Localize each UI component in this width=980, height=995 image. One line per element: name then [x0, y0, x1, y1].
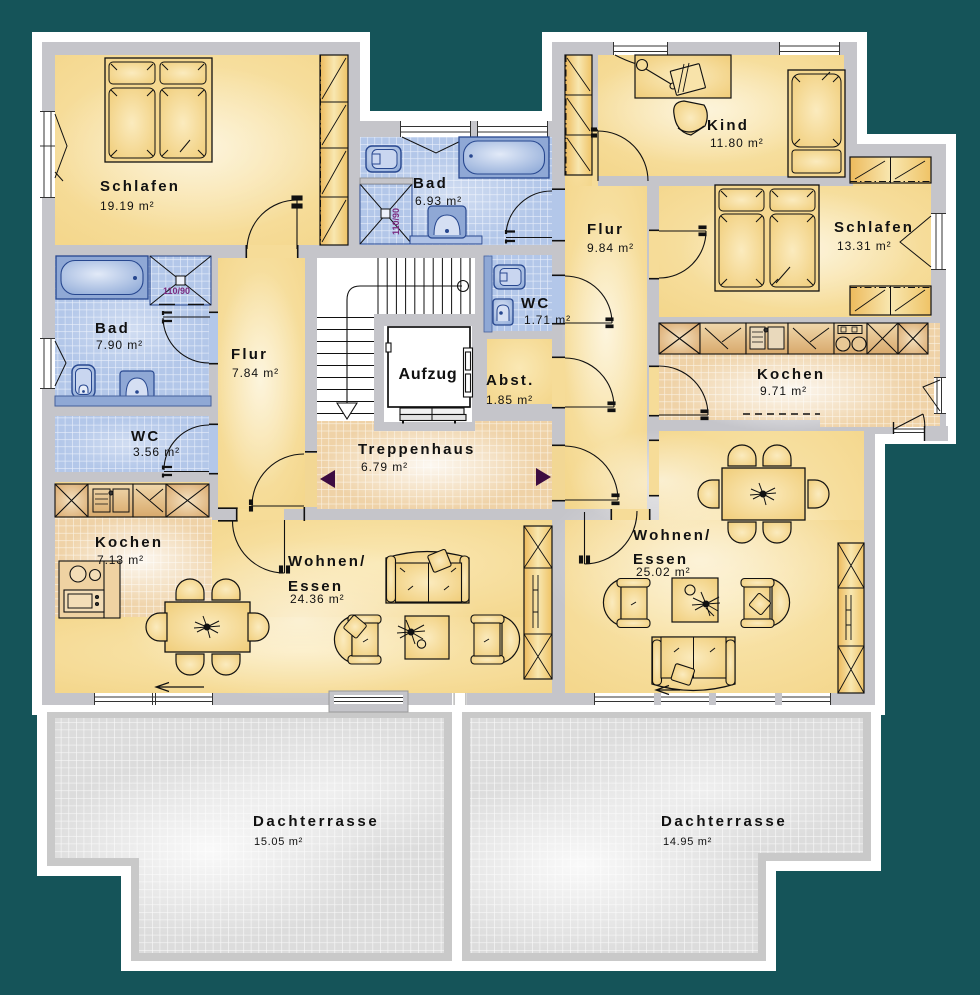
- svg-text:Treppenhaus: Treppenhaus: [358, 441, 476, 458]
- svg-text:Dachterrasse: Dachterrasse: [253, 813, 379, 830]
- svg-text:Wohnen/: Wohnen/: [633, 527, 711, 544]
- svg-text:13.31 m²: 13.31 m²: [837, 239, 892, 253]
- svg-text:15.05 m²: 15.05 m²: [254, 836, 303, 848]
- svg-text:Kochen: Kochen: [95, 534, 163, 551]
- svg-text:1.71 m²: 1.71 m²: [524, 313, 571, 327]
- svg-text:7.84 m²: 7.84 m²: [232, 366, 279, 380]
- svg-text:Schlafen: Schlafen: [834, 219, 914, 236]
- svg-text:1.85 m²: 1.85 m²: [486, 393, 533, 407]
- svg-text:6.93 m²: 6.93 m²: [415, 194, 462, 208]
- svg-text:19.19 m²: 19.19 m²: [100, 199, 155, 213]
- svg-text:24.36 m²: 24.36 m²: [290, 592, 345, 606]
- svg-text:14.95 m²: 14.95 m²: [663, 836, 712, 848]
- svg-text:9.84 m²: 9.84 m²: [587, 241, 634, 255]
- svg-text:Bad: Bad: [413, 175, 448, 192]
- svg-text:7.90 m²: 7.90 m²: [96, 338, 143, 352]
- svg-text:11.80 m²: 11.80 m²: [710, 136, 764, 150]
- svg-text:Kochen: Kochen: [757, 366, 825, 383]
- svg-text:7.13 m²: 7.13 m²: [97, 553, 144, 567]
- svg-text:25.02 m²: 25.02 m²: [636, 565, 691, 579]
- svg-text:Aufzug: Aufzug: [398, 366, 457, 383]
- svg-text:6.79 m²: 6.79 m²: [361, 460, 408, 474]
- svg-text:Flur: Flur: [587, 221, 624, 238]
- svg-text:WC: WC: [521, 295, 550, 312]
- svg-text:Kind: Kind: [707, 117, 749, 134]
- svg-text:Schlafen: Schlafen: [100, 178, 180, 195]
- svg-text:110/90: 110/90: [391, 208, 401, 235]
- svg-text:Dachterrasse: Dachterrasse: [661, 813, 787, 830]
- svg-text:Flur: Flur: [231, 346, 268, 363]
- svg-text:9.71 m²: 9.71 m²: [760, 384, 807, 398]
- svg-text:Abst.: Abst.: [486, 372, 535, 389]
- svg-text:Wohnen/: Wohnen/: [288, 553, 366, 570]
- svg-text:Bad: Bad: [95, 320, 130, 337]
- svg-text:WC: WC: [131, 428, 160, 445]
- svg-text:3.56 m²: 3.56 m²: [133, 445, 180, 459]
- svg-text:110/90: 110/90: [163, 286, 190, 296]
